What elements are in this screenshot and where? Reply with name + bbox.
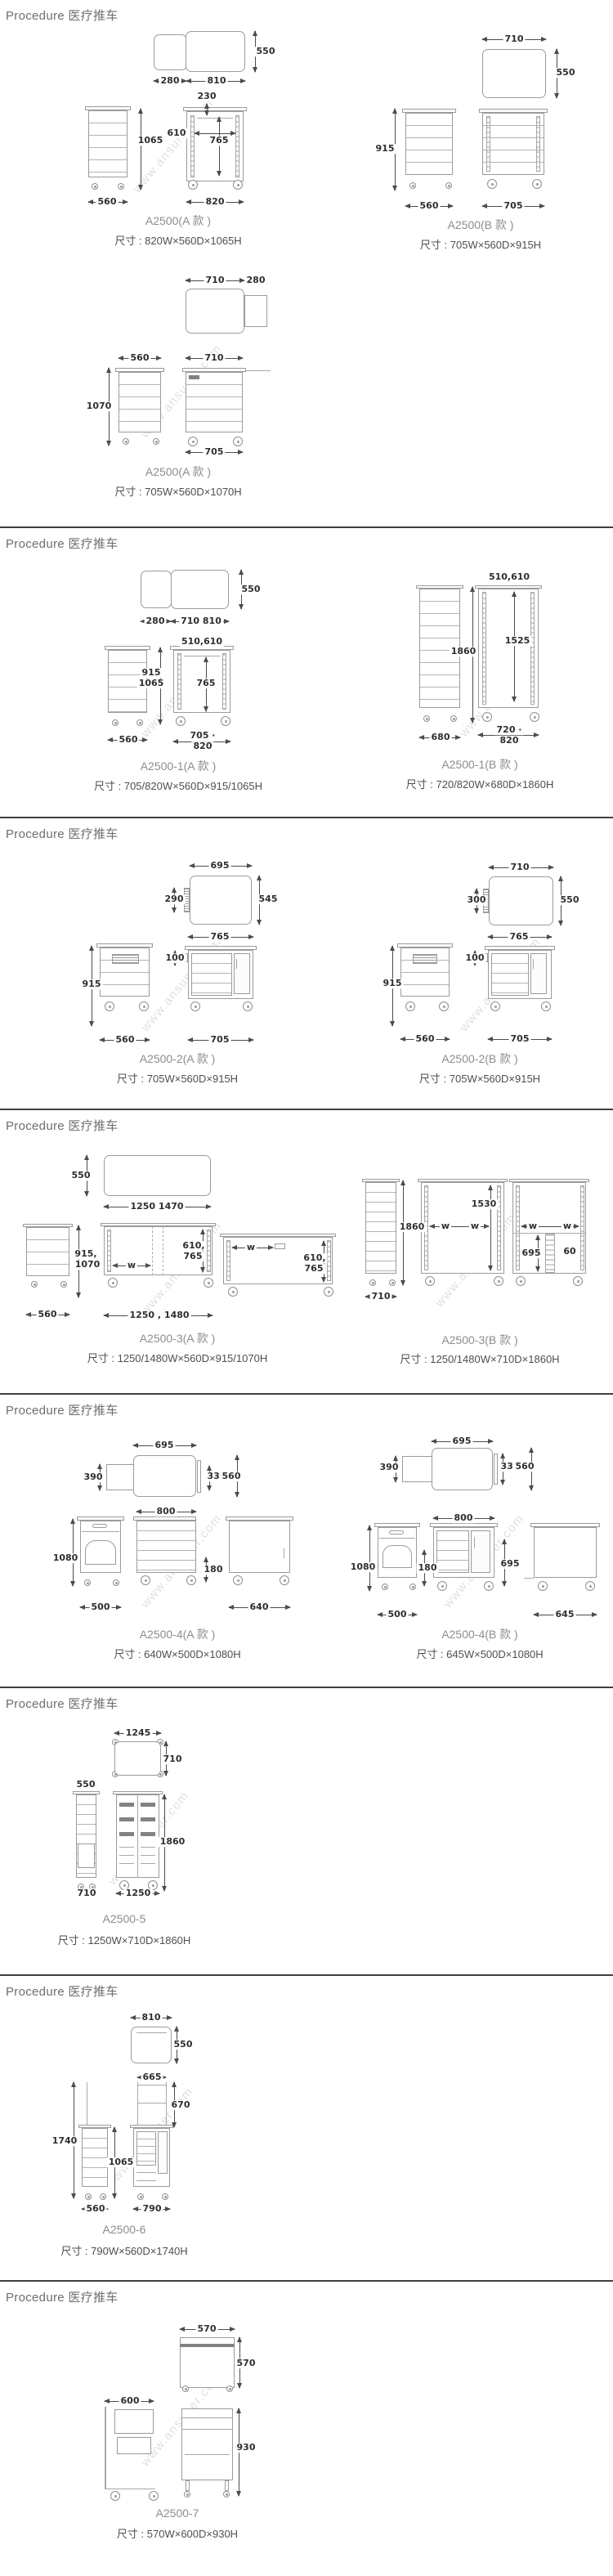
dim-label: 1860 bbox=[159, 1837, 187, 1847]
rail bbox=[482, 592, 486, 705]
dim-label: 560 bbox=[221, 1472, 243, 1481]
dim-label: 230 bbox=[196, 92, 218, 101]
section-header: Procedure 医疗推车 bbox=[6, 1695, 119, 1712]
dim-label: 300 bbox=[466, 895, 488, 905]
top-view bbox=[104, 1155, 211, 1196]
dim-label: 610, bbox=[181, 1241, 206, 1251]
dim-label: 915, bbox=[73, 1249, 98, 1259]
dim-label: 765 bbox=[303, 1264, 325, 1274]
wheel bbox=[85, 2193, 92, 2200]
section-header: Procedure 医疗推车 bbox=[6, 825, 119, 842]
spec-sheet: Procedure 医疗推车 www.ansuner.com www.ansun… bbox=[0, 0, 613, 2576]
dim-label: 1740 bbox=[51, 2136, 79, 2146]
wheel bbox=[487, 179, 497, 189]
wheel bbox=[423, 715, 430, 722]
dim-label: 710 bbox=[370, 1292, 392, 1301]
dim-label: 560 bbox=[96, 197, 119, 207]
dim-line bbox=[207, 104, 208, 115]
model-label: A2500-3(A 款 ) bbox=[140, 1330, 216, 1346]
dim-label: 290 bbox=[163, 894, 186, 904]
section-header: Procedure 医疗推车 bbox=[6, 1982, 119, 2000]
dim-label: 560 bbox=[418, 201, 441, 211]
dim-label: 390 bbox=[378, 1463, 400, 1472]
crossbar bbox=[137, 2103, 166, 2103]
dim-label: 820 bbox=[499, 736, 521, 746]
dim-label: 1065 bbox=[107, 2157, 136, 2167]
rail bbox=[580, 1185, 584, 1270]
push-handle bbox=[246, 370, 271, 371]
dim-label: 915 bbox=[81, 979, 103, 989]
center-divider bbox=[137, 1794, 138, 1878]
dim-label: w bbox=[527, 1221, 539, 1231]
dim-line bbox=[403, 1180, 404, 1285]
model-label: A2500-5 bbox=[103, 1912, 146, 1925]
wheel bbox=[233, 1575, 243, 1585]
dim-label: 560 bbox=[129, 353, 151, 363]
model-label: A2500-3(B 款 ) bbox=[441, 1332, 517, 1348]
wheel bbox=[149, 2491, 159, 2501]
dim-label: 1525 bbox=[503, 636, 532, 646]
drawer-handle bbox=[389, 1530, 404, 1534]
dim-label: 765 bbox=[208, 136, 230, 146]
wheel bbox=[530, 712, 539, 722]
tray-front bbox=[141, 1832, 155, 1836]
wheel bbox=[228, 1287, 238, 1297]
drawer-module bbox=[78, 1844, 95, 1868]
dim-label: 645 bbox=[554, 1610, 576, 1620]
dim-label: 180 bbox=[203, 1565, 225, 1575]
tray-front bbox=[119, 1832, 134, 1836]
rail bbox=[530, 592, 535, 705]
dim-line bbox=[219, 117, 220, 176]
wheel bbox=[60, 1281, 67, 1288]
dim-label: 550 bbox=[559, 895, 581, 905]
dim-label: 915 bbox=[374, 144, 396, 154]
top-view bbox=[114, 1741, 161, 1776]
model-label: A2500-2(B 款 ) bbox=[441, 1051, 517, 1067]
dim-label: 1530 bbox=[470, 1199, 499, 1209]
wheel bbox=[233, 437, 243, 446]
front-view-body bbox=[136, 1521, 196, 1573]
dim-label: 710 bbox=[509, 862, 531, 872]
handle-pole bbox=[105, 2407, 106, 2489]
wheel bbox=[139, 1001, 149, 1011]
top-rail bbox=[180, 2344, 235, 2347]
top-view bbox=[190, 876, 252, 925]
tray-front bbox=[119, 1817, 134, 1821]
rail bbox=[177, 653, 181, 710]
wheel bbox=[188, 180, 198, 190]
frame-post bbox=[166, 2082, 167, 2127]
upper-basket bbox=[114, 2409, 154, 2434]
side-view-body bbox=[88, 110, 128, 177]
foot-bracket bbox=[524, 1578, 534, 1579]
dim-label: 570 bbox=[196, 2324, 218, 2334]
handle-line bbox=[136, 2032, 167, 2033]
side-view-body bbox=[82, 2128, 108, 2187]
drawer-line bbox=[136, 2172, 156, 2173]
dim-label: 500 bbox=[90, 1602, 112, 1612]
wheel bbox=[243, 1001, 253, 1011]
dim-label: 710 810 bbox=[179, 616, 223, 626]
wheel bbox=[324, 1287, 333, 1297]
dim-label: 1065 bbox=[137, 679, 166, 688]
tray-slot bbox=[119, 1855, 134, 1856]
tray-slot bbox=[119, 1847, 134, 1848]
dim-label: 510,610 bbox=[180, 637, 224, 647]
dim-label: 765 bbox=[182, 1252, 204, 1261]
dim-label: 705 bbox=[509, 1034, 531, 1044]
size-label: 尺寸 : 705W×560D×915H bbox=[117, 1070, 238, 1086]
dim-label: w bbox=[562, 1221, 573, 1231]
door-handle bbox=[474, 1537, 475, 1548]
dim-label: 1860 bbox=[398, 1222, 427, 1232]
dim-label: 500 bbox=[387, 1610, 409, 1620]
tray-slot bbox=[141, 1863, 155, 1864]
wheel bbox=[450, 715, 457, 722]
wheel bbox=[585, 1581, 595, 1591]
dim-label: 710 bbox=[503, 34, 526, 44]
dim-label: 820 bbox=[192, 741, 214, 751]
section-7: Procedure 医疗推车 www.ansuner.com 810 550 1… bbox=[0, 1974, 613, 2280]
door-handle bbox=[236, 959, 237, 969]
wheel bbox=[490, 1001, 500, 1011]
size-label: 尺寸 : 820W×560D×1065H bbox=[114, 232, 241, 248]
size-label: 尺寸 : 1250/1480W×710D×1860H bbox=[400, 1351, 559, 1366]
size-label: 尺寸 : 640W×500D×1080H bbox=[114, 1646, 240, 1661]
size-label: 尺寸 : 1250/1480W×560D×915/1070H bbox=[87, 1350, 267, 1365]
tray-slot bbox=[119, 1863, 134, 1864]
dim-label: 705 · bbox=[189, 731, 217, 741]
wheel bbox=[221, 716, 230, 726]
top-view bbox=[171, 570, 229, 609]
wheel bbox=[182, 2386, 189, 2392]
wheel bbox=[541, 1001, 551, 1011]
wheel bbox=[233, 180, 243, 190]
dim-label: 710 bbox=[204, 276, 226, 285]
label-tag bbox=[189, 375, 199, 379]
rail bbox=[235, 115, 239, 177]
top-view bbox=[186, 31, 245, 72]
rail bbox=[327, 1240, 331, 1281]
rail bbox=[207, 1230, 211, 1272]
dim-label: 550 bbox=[240, 585, 262, 594]
open-arch bbox=[383, 1545, 412, 1568]
dim-label: 695 bbox=[154, 1440, 176, 1450]
dim-label: 640 bbox=[248, 1602, 271, 1612]
top-view bbox=[432, 1448, 493, 1490]
lower-bin bbox=[117, 2437, 151, 2454]
dim-label: 180 bbox=[417, 1563, 439, 1573]
wheel bbox=[389, 1279, 396, 1286]
wheel bbox=[123, 438, 129, 445]
section-header: Procedure 医疗推车 bbox=[6, 7, 119, 24]
dim-label: 695 bbox=[209, 861, 231, 871]
model-label: A2500-4(B 款 ) bbox=[441, 1626, 517, 1642]
drawer-stack bbox=[491, 953, 529, 996]
section-header: Procedure 医疗推车 bbox=[6, 2288, 119, 2305]
dim-label: 550 bbox=[555, 68, 577, 78]
wheel bbox=[137, 2193, 144, 2200]
center-divider bbox=[163, 1226, 163, 1275]
side-rack-body bbox=[365, 1182, 396, 1274]
handle-bar bbox=[494, 1454, 498, 1485]
wheel bbox=[113, 1579, 119, 1586]
top-view-tray bbox=[141, 571, 172, 608]
frame-post bbox=[137, 2082, 138, 2127]
inner-tray bbox=[185, 2454, 230, 2455]
wheel bbox=[439, 1001, 449, 1011]
rail bbox=[226, 1240, 230, 1281]
dim-label: 695 bbox=[499, 1559, 521, 1569]
front-view-body bbox=[482, 113, 544, 175]
wheel bbox=[204, 1278, 213, 1288]
dim-label: 550 bbox=[70, 1171, 92, 1180]
drawer-stack bbox=[136, 2131, 156, 2166]
wheel bbox=[184, 2491, 190, 2498]
size-label: 尺寸 : 705W×560D×915H bbox=[420, 236, 541, 252]
dim-label: w bbox=[245, 1243, 257, 1252]
wheel bbox=[482, 712, 492, 722]
dim-label: 570 bbox=[235, 2359, 257, 2368]
drawer-line bbox=[82, 1531, 119, 1532]
dim-label: 1250 , 1480 bbox=[128, 1310, 190, 1320]
section-8: Procedure 医疗推车 www.ansuner.com 570 570 6… bbox=[0, 2280, 613, 2576]
dim-label: 100 bbox=[464, 953, 486, 963]
dim-line bbox=[369, 1525, 370, 1591]
rail bbox=[190, 115, 195, 177]
wheel bbox=[409, 182, 416, 189]
dim-label: 930 bbox=[235, 2443, 257, 2453]
wheel bbox=[188, 437, 198, 446]
dim-label: 280 bbox=[145, 616, 167, 626]
tray-slot bbox=[141, 1847, 155, 1848]
dim-label: 560 bbox=[37, 1310, 59, 1319]
dim-label: 1080 bbox=[349, 1562, 378, 1572]
dim-label: 280 bbox=[245, 276, 267, 285]
wheel bbox=[153, 438, 159, 445]
size-label: 尺寸 : 720/820W×680D×1860H bbox=[406, 776, 554, 791]
wheel bbox=[425, 1276, 435, 1286]
dim-label: 600 bbox=[119, 2396, 141, 2406]
dim-label: 560 bbox=[85, 2204, 107, 2214]
dim-label: 1070 bbox=[74, 1260, 102, 1270]
rail bbox=[497, 1185, 501, 1270]
wheel bbox=[112, 719, 119, 726]
section-header: Procedure 医疗推车 bbox=[6, 535, 119, 552]
rail bbox=[222, 653, 226, 710]
dim-label: 810 bbox=[206, 76, 228, 86]
center-divider bbox=[152, 1226, 153, 1275]
dim-label: w bbox=[440, 1221, 451, 1231]
model-label: A2500-4(A 款 ) bbox=[140, 1626, 216, 1642]
tray-slot bbox=[141, 1855, 155, 1856]
top-view-tray bbox=[106, 1464, 134, 1490]
wheel bbox=[31, 1281, 38, 1288]
dim-label: 765 bbox=[209, 932, 231, 942]
drawer-stack bbox=[436, 1530, 469, 1573]
wheel bbox=[494, 1276, 503, 1286]
top-view bbox=[133, 1455, 196, 1497]
wheel bbox=[369, 1279, 376, 1286]
dim-label: 670 bbox=[170, 2100, 192, 2110]
dim-label: 1860 bbox=[450, 647, 478, 656]
top-view bbox=[489, 876, 553, 925]
dim-label: 765 bbox=[195, 679, 217, 688]
wheel bbox=[437, 1581, 447, 1591]
side-view-body bbox=[26, 1227, 69, 1276]
dim-label: 680 bbox=[430, 732, 452, 742]
size-label: 尺寸 : 1250W×710D×1860H bbox=[58, 1932, 191, 1947]
wheel bbox=[105, 1001, 114, 1011]
dim-label: 915 bbox=[382, 979, 404, 988]
dim-label: 550 bbox=[75, 1780, 97, 1790]
dim-label: 560 bbox=[414, 1034, 436, 1044]
top-view bbox=[482, 49, 546, 98]
size-label: 尺寸 : 570W×600D×930H bbox=[117, 2525, 238, 2541]
size-label: 尺寸 : 645W×500D×1080H bbox=[416, 1646, 543, 1661]
front-view-body bbox=[186, 372, 243, 432]
wheel bbox=[573, 1276, 583, 1286]
drawer-stack bbox=[191, 953, 232, 996]
section-6: Procedure 医疗推车 www.ansuner.com 1245 710 … bbox=[0, 1687, 613, 1974]
dim-label: 1250 bbox=[124, 1888, 153, 1898]
tray-front bbox=[141, 1817, 155, 1821]
drawer-line bbox=[136, 2180, 156, 2181]
tray-front bbox=[119, 1803, 134, 1807]
side-view-body bbox=[119, 372, 161, 432]
section-3: Procedure 医疗推车 www.ansuner.com www.ansun… bbox=[0, 817, 613, 1109]
rail bbox=[486, 116, 490, 172]
size-label: 尺寸 : 705/820W×560D×915/1065H bbox=[94, 777, 262, 793]
wheel bbox=[190, 1001, 200, 1011]
dim-label: 610, bbox=[302, 1253, 327, 1263]
base-frame bbox=[105, 2489, 155, 2489]
wheel bbox=[405, 1001, 415, 1011]
wheel bbox=[176, 716, 186, 726]
dim-label: 800 bbox=[453, 1513, 475, 1523]
section-4: Procedure 医疗推车 www.ansuner.com www.ansun… bbox=[0, 1109, 613, 1393]
size-label: 尺寸 : 790W×560D×1740H bbox=[60, 2242, 187, 2258]
dim-label: 705 bbox=[209, 1035, 231, 1045]
wheel bbox=[532, 179, 542, 189]
rail bbox=[516, 1185, 520, 1270]
top-view-tray bbox=[402, 1456, 435, 1482]
drawer-line bbox=[181, 2429, 233, 2430]
dim-label: 800 bbox=[155, 1507, 177, 1516]
wheel bbox=[445, 182, 452, 189]
model-label: A2500-2(A 款 ) bbox=[140, 1051, 216, 1067]
latch bbox=[275, 1243, 285, 1249]
dim-label: 710 bbox=[76, 1888, 98, 1898]
dim-label: 705 bbox=[204, 447, 226, 457]
dim-label: 560 bbox=[514, 1462, 536, 1472]
leg bbox=[186, 2480, 190, 2491]
section-header: Procedure 医疗推车 bbox=[6, 1401, 119, 1418]
dim-line bbox=[141, 109, 141, 190]
wheel bbox=[84, 1579, 91, 1586]
top-view-tray bbox=[244, 295, 267, 327]
dim-label: 610 bbox=[166, 128, 188, 138]
wheel bbox=[223, 2491, 230, 2498]
wheel bbox=[136, 719, 143, 726]
dim-label: 765 bbox=[508, 932, 530, 942]
wheel bbox=[118, 183, 124, 190]
model-label: A2500(B 款 ) bbox=[448, 217, 514, 233]
dim-label: 1080 bbox=[51, 1553, 80, 1563]
rail bbox=[107, 1230, 111, 1272]
drawer-line bbox=[181, 2417, 233, 2418]
size-label: 尺寸 : 705W×560D×915H bbox=[419, 1070, 540, 1086]
dim-label: 280 bbox=[159, 76, 181, 86]
back-view-body bbox=[534, 1527, 597, 1578]
push-handle bbox=[197, 118, 233, 119]
dim-label: 100 bbox=[164, 953, 186, 963]
dim-label: 720 · bbox=[495, 725, 524, 735]
vent-hatch bbox=[112, 954, 139, 964]
section-1: Procedure 医疗推车 www.ansuner.com www.ansun… bbox=[0, 0, 613, 526]
dim-label: 510,610 bbox=[487, 572, 531, 582]
handle-bar bbox=[197, 1460, 201, 1493]
dim-label: 1070 bbox=[85, 401, 114, 411]
dim-label: 60 bbox=[562, 1247, 577, 1257]
front-view-body bbox=[181, 2408, 233, 2480]
section-5: Procedure 医疗推车 www.ansuner.com www.ansun… bbox=[0, 1393, 613, 1687]
wheel bbox=[382, 1584, 388, 1590]
dim-label: 705 bbox=[503, 201, 525, 211]
wheel bbox=[162, 2193, 168, 2200]
model-label: A2500-1(A 款 ) bbox=[141, 758, 217, 774]
dim-label: 790 bbox=[141, 2204, 163, 2214]
model-label: A2500-1(B 款 ) bbox=[441, 756, 517, 773]
size-label: 尺寸 : 705W×560D×1070H bbox=[114, 483, 241, 499]
dim-label: 695 bbox=[521, 1248, 543, 1258]
dim-label: 710 bbox=[162, 1754, 184, 1764]
back-view-body bbox=[229, 1521, 290, 1573]
wheel bbox=[141, 1575, 150, 1585]
dim-label: w bbox=[126, 1261, 137, 1270]
dim-label: 545 bbox=[257, 894, 280, 904]
section-header: Procedure 医疗推车 bbox=[6, 1117, 119, 1134]
model-label: A2500(A 款 ) bbox=[145, 464, 211, 480]
center-post bbox=[545, 1234, 555, 1273]
dim-label: 710 bbox=[204, 353, 226, 363]
wheel bbox=[108, 1278, 118, 1288]
front-rack-body bbox=[478, 589, 539, 708]
door-handle bbox=[284, 1548, 284, 1558]
wheel bbox=[280, 1575, 289, 1585]
top-view-tray bbox=[154, 34, 187, 70]
wheel bbox=[538, 1581, 548, 1591]
side-view-body bbox=[405, 113, 453, 175]
model-label: A2500(A 款 ) bbox=[145, 213, 211, 229]
drawer-line bbox=[379, 1538, 415, 1539]
leg bbox=[225, 2480, 229, 2491]
wheel bbox=[516, 1276, 526, 1286]
dim-label: w bbox=[469, 1221, 481, 1231]
handle-pole bbox=[87, 2082, 87, 2127]
dim-label: 560 bbox=[114, 1035, 136, 1045]
dim-label: 1250 1470 bbox=[128, 1202, 185, 1212]
crossbar bbox=[137, 2085, 166, 2085]
door-handle bbox=[533, 959, 534, 969]
wheel bbox=[484, 1581, 494, 1591]
door-panel bbox=[158, 2131, 168, 2174]
dim-label: 695 bbox=[451, 1436, 473, 1446]
dim-label: 390 bbox=[83, 1472, 105, 1482]
dim-line bbox=[514, 592, 515, 701]
open-arch bbox=[85, 1540, 116, 1565]
